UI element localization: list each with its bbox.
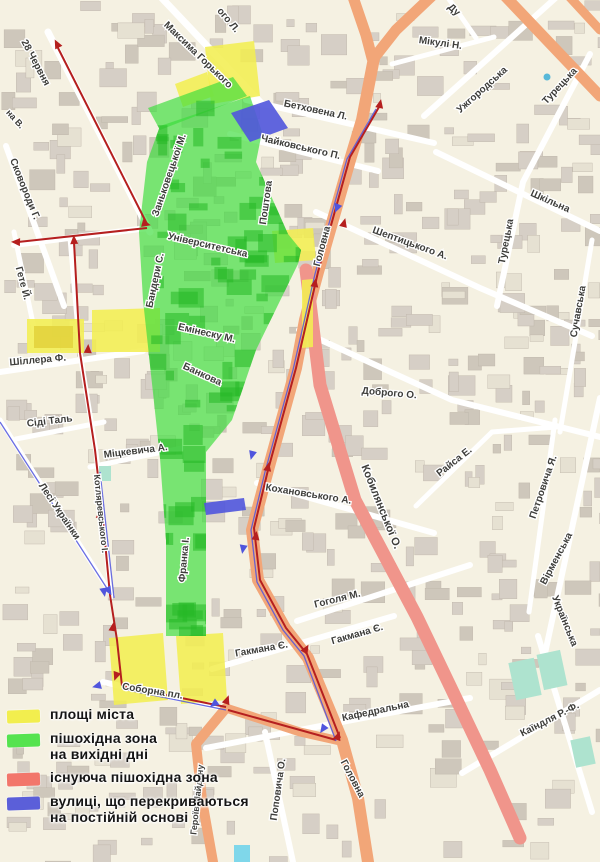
building	[517, 124, 529, 143]
building-in-zone	[222, 362, 232, 379]
building	[285, 204, 302, 217]
legend-item-permanently-closed-streets: вулиці, що перекриваються на постійній о…	[7, 794, 307, 825]
building	[123, 142, 133, 162]
building	[469, 477, 480, 487]
building	[30, 662, 49, 674]
building	[373, 93, 380, 102]
building	[449, 359, 458, 366]
building	[105, 419, 117, 431]
building	[12, 98, 36, 108]
building	[269, 857, 287, 862]
map-legend: площі міста пішохідна зона на вихідні дн…	[7, 707, 307, 834]
building	[478, 354, 495, 366]
building-in-zone	[175, 502, 195, 517]
building	[479, 653, 486, 665]
building	[505, 706, 524, 719]
building	[406, 202, 422, 211]
building	[488, 555, 502, 572]
building	[321, 35, 347, 55]
building	[535, 401, 544, 413]
building	[551, 326, 570, 345]
building	[115, 359, 130, 379]
building	[447, 209, 458, 225]
building	[90, 184, 110, 192]
building	[538, 818, 554, 825]
building	[63, 634, 82, 650]
building	[212, 599, 220, 617]
building	[480, 192, 497, 203]
building	[34, 142, 49, 150]
building	[23, 678, 43, 690]
building	[492, 516, 502, 529]
building-in-zone	[177, 610, 202, 619]
building	[590, 214, 600, 224]
building	[521, 647, 531, 654]
building	[493, 444, 501, 453]
building	[457, 587, 481, 597]
building-in-zone	[196, 101, 214, 117]
building	[304, 746, 330, 755]
building-in-zone	[171, 292, 198, 305]
building	[221, 617, 242, 628]
building	[74, 171, 89, 188]
building	[435, 759, 461, 774]
building	[406, 314, 432, 325]
building	[376, 735, 403, 748]
legend-swatch-weekend-pedestrian-zone	[7, 733, 40, 747]
building	[578, 176, 593, 193]
building	[529, 435, 550, 445]
building	[448, 29, 465, 38]
building	[148, 459, 158, 478]
building	[57, 155, 65, 174]
building	[460, 627, 473, 641]
legend-label: на вихідні дні	[50, 747, 157, 763]
building	[589, 319, 600, 326]
building	[141, 838, 152, 845]
building	[288, 46, 310, 65]
building	[548, 21, 574, 29]
building	[379, 328, 403, 336]
building	[593, 459, 600, 469]
building	[13, 506, 33, 523]
building	[69, 206, 92, 218]
building	[565, 581, 591, 595]
building	[580, 507, 592, 517]
building	[576, 683, 586, 691]
building	[280, 165, 298, 176]
building	[273, 350, 284, 368]
building	[369, 173, 378, 188]
legend-item-weekend-pedestrian-zone: пішохідна зона на вихідні дні	[7, 731, 307, 762]
building	[567, 119, 589, 130]
building	[327, 825, 338, 839]
building	[468, 134, 495, 142]
building	[261, 168, 283, 175]
building	[584, 491, 592, 506]
building	[560, 458, 576, 473]
building	[100, 69, 127, 87]
building	[554, 269, 569, 279]
building	[531, 842, 549, 859]
building	[504, 435, 512, 450]
building	[357, 340, 364, 351]
legend-item-existing-pedestrian-zone: існуюча пішохідна зона	[7, 770, 307, 786]
building	[112, 540, 133, 554]
building	[95, 641, 105, 662]
building	[394, 194, 402, 214]
building	[452, 602, 463, 614]
building	[425, 588, 449, 600]
building	[540, 179, 561, 191]
building	[306, 23, 317, 32]
building	[257, 609, 266, 617]
building	[120, 504, 129, 512]
building	[133, 136, 146, 155]
building	[442, 741, 461, 758]
building-in-zone	[185, 400, 200, 408]
building	[96, 375, 107, 383]
building	[449, 372, 458, 392]
building	[506, 274, 522, 291]
building	[158, 58, 171, 75]
building	[349, 327, 358, 345]
building-in-zone	[156, 134, 169, 141]
building-in-zone	[201, 159, 210, 168]
building	[342, 841, 351, 857]
building	[44, 615, 58, 634]
building	[422, 217, 439, 229]
legend-swatch-permanently-closed-streets	[7, 797, 40, 811]
building	[327, 549, 334, 565]
building-in-zone	[151, 335, 162, 344]
building	[471, 256, 485, 264]
square-soborna-b	[176, 633, 227, 704]
building	[18, 343, 27, 353]
building	[382, 401, 391, 414]
building	[386, 139, 399, 154]
building	[450, 412, 469, 424]
building-in-zone	[246, 255, 265, 263]
building	[585, 1, 600, 11]
building	[406, 547, 414, 566]
building-in-zone	[240, 269, 256, 279]
building	[590, 562, 600, 582]
building	[523, 391, 530, 405]
building	[361, 216, 381, 224]
building	[5, 280, 16, 293]
building-in-zone	[189, 203, 208, 210]
legend-label: площі міста	[50, 707, 134, 723]
building	[595, 478, 600, 498]
building	[444, 841, 462, 857]
building-in-zone	[258, 234, 277, 252]
building	[505, 337, 529, 349]
building	[254, 25, 273, 42]
building	[488, 375, 510, 389]
building	[467, 672, 482, 685]
building-in-zone	[168, 214, 187, 231]
building	[145, 19, 153, 33]
building	[91, 694, 105, 700]
building	[93, 845, 110, 862]
building	[530, 335, 543, 342]
square-shillera-a-inner	[34, 326, 73, 348]
building	[579, 135, 600, 145]
legend-label: існуюча пішохідна зона	[50, 770, 218, 786]
building	[125, 45, 138, 63]
building	[561, 167, 572, 183]
building-in-zone	[214, 267, 227, 279]
building	[102, 117, 128, 123]
building	[496, 502, 514, 510]
building-in-zone	[183, 425, 202, 445]
building	[519, 483, 530, 498]
building	[8, 407, 20, 421]
building	[510, 605, 529, 622]
building	[540, 366, 561, 374]
building	[15, 587, 29, 593]
building	[60, 612, 79, 626]
building	[30, 170, 55, 190]
building	[415, 538, 438, 555]
fountain-dot	[544, 74, 551, 81]
building	[325, 289, 336, 308]
building	[17, 643, 35, 651]
building	[362, 259, 378, 267]
legend-label: пішохідна зона	[50, 731, 157, 747]
building	[591, 144, 600, 155]
building	[415, 461, 424, 473]
building	[116, 556, 128, 571]
building-in-zone	[256, 294, 267, 302]
building	[60, 198, 68, 207]
building	[528, 235, 540, 252]
building	[454, 190, 468, 199]
building	[136, 598, 162, 607]
building	[213, 459, 234, 473]
building	[429, 725, 444, 733]
building	[574, 368, 586, 386]
building	[442, 291, 465, 298]
building	[55, 482, 78, 496]
building	[283, 129, 300, 136]
building	[445, 128, 454, 134]
building-in-zone	[193, 128, 203, 146]
building	[545, 789, 570, 808]
building	[81, 1, 101, 10]
building	[52, 124, 68, 135]
building	[596, 729, 600, 742]
building	[538, 156, 557, 167]
building-in-zone	[218, 137, 242, 149]
building-in-zone	[225, 152, 243, 159]
building	[505, 621, 513, 631]
building-in-zone	[211, 258, 220, 266]
building	[573, 163, 593, 172]
building	[591, 629, 600, 636]
building	[409, 355, 430, 370]
building	[286, 520, 305, 532]
legend-item-city-squares: площі міста	[7, 707, 307, 723]
building	[499, 579, 517, 599]
building	[115, 618, 128, 629]
building	[576, 649, 600, 665]
building	[329, 267, 341, 287]
building	[589, 283, 600, 298]
building	[367, 667, 377, 687]
building	[3, 604, 28, 620]
map-screenshot: 28 Червняна В.Сковороди Г.ого Л.Максима …	[0, 0, 600, 862]
building	[89, 250, 98, 269]
legend-label: на постійній основі	[50, 810, 249, 826]
building-in-zone	[183, 446, 206, 463]
building	[365, 143, 374, 162]
building	[93, 285, 104, 295]
building	[118, 23, 145, 38]
building	[417, 76, 443, 95]
legend-label: вулиці, що перекриваються	[50, 794, 249, 810]
water-rect	[234, 845, 250, 862]
building	[311, 646, 320, 654]
legend-swatch-city-squares	[7, 709, 40, 723]
building	[287, 20, 294, 27]
building	[575, 23, 585, 33]
building-in-zone	[261, 275, 289, 292]
building	[25, 531, 45, 544]
building	[375, 800, 386, 819]
building	[302, 533, 313, 551]
building-in-zone	[166, 371, 174, 381]
building	[362, 448, 388, 460]
legend-swatch-existing-pedestrian-zone	[7, 773, 40, 787]
building	[496, 163, 520, 171]
building	[364, 411, 378, 427]
building	[345, 436, 363, 456]
